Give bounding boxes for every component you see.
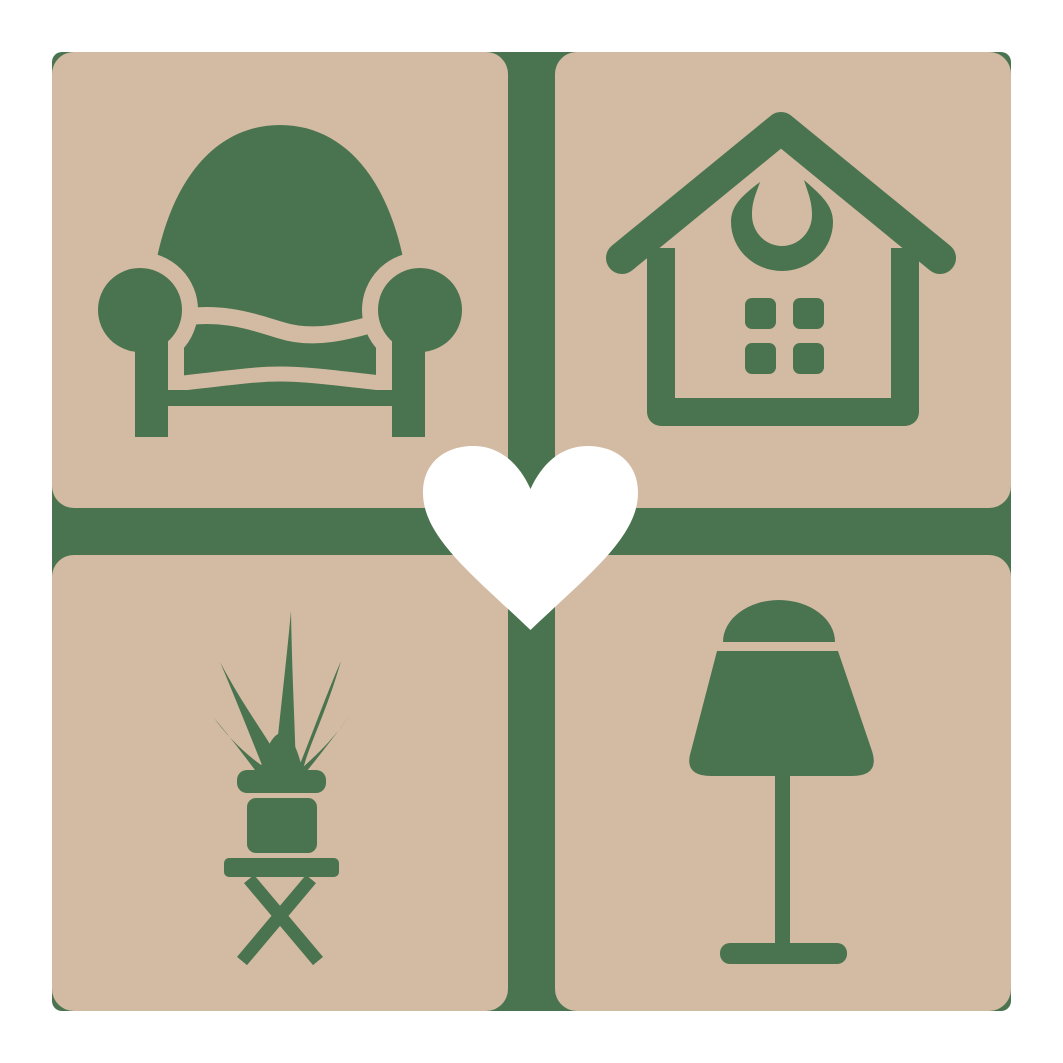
plant-stool-top — [224, 858, 339, 877]
lamp-base — [720, 943, 847, 964]
plant-pot-rim — [237, 770, 326, 793]
house-window-pane-top-left — [745, 298, 776, 329]
armchair-left-leg — [135, 314, 168, 437]
logo-canvas — [0, 0, 1063, 1063]
plant-pot-body — [247, 798, 317, 853]
tile-lamp — [555, 555, 1011, 1011]
tile-plant — [52, 555, 508, 1011]
house-window-pane-bottom-right — [793, 343, 824, 374]
tile-house — [555, 52, 1011, 508]
logo-graphic — [0, 0, 1063, 1063]
lamp-stem — [775, 776, 790, 948]
house-window-pane-bottom-left — [745, 343, 776, 374]
armchair-base-rail — [166, 390, 394, 406]
tile-armchair — [52, 52, 508, 508]
house-window-pane-top-right — [793, 298, 824, 329]
armchair-right-leg — [392, 314, 425, 437]
